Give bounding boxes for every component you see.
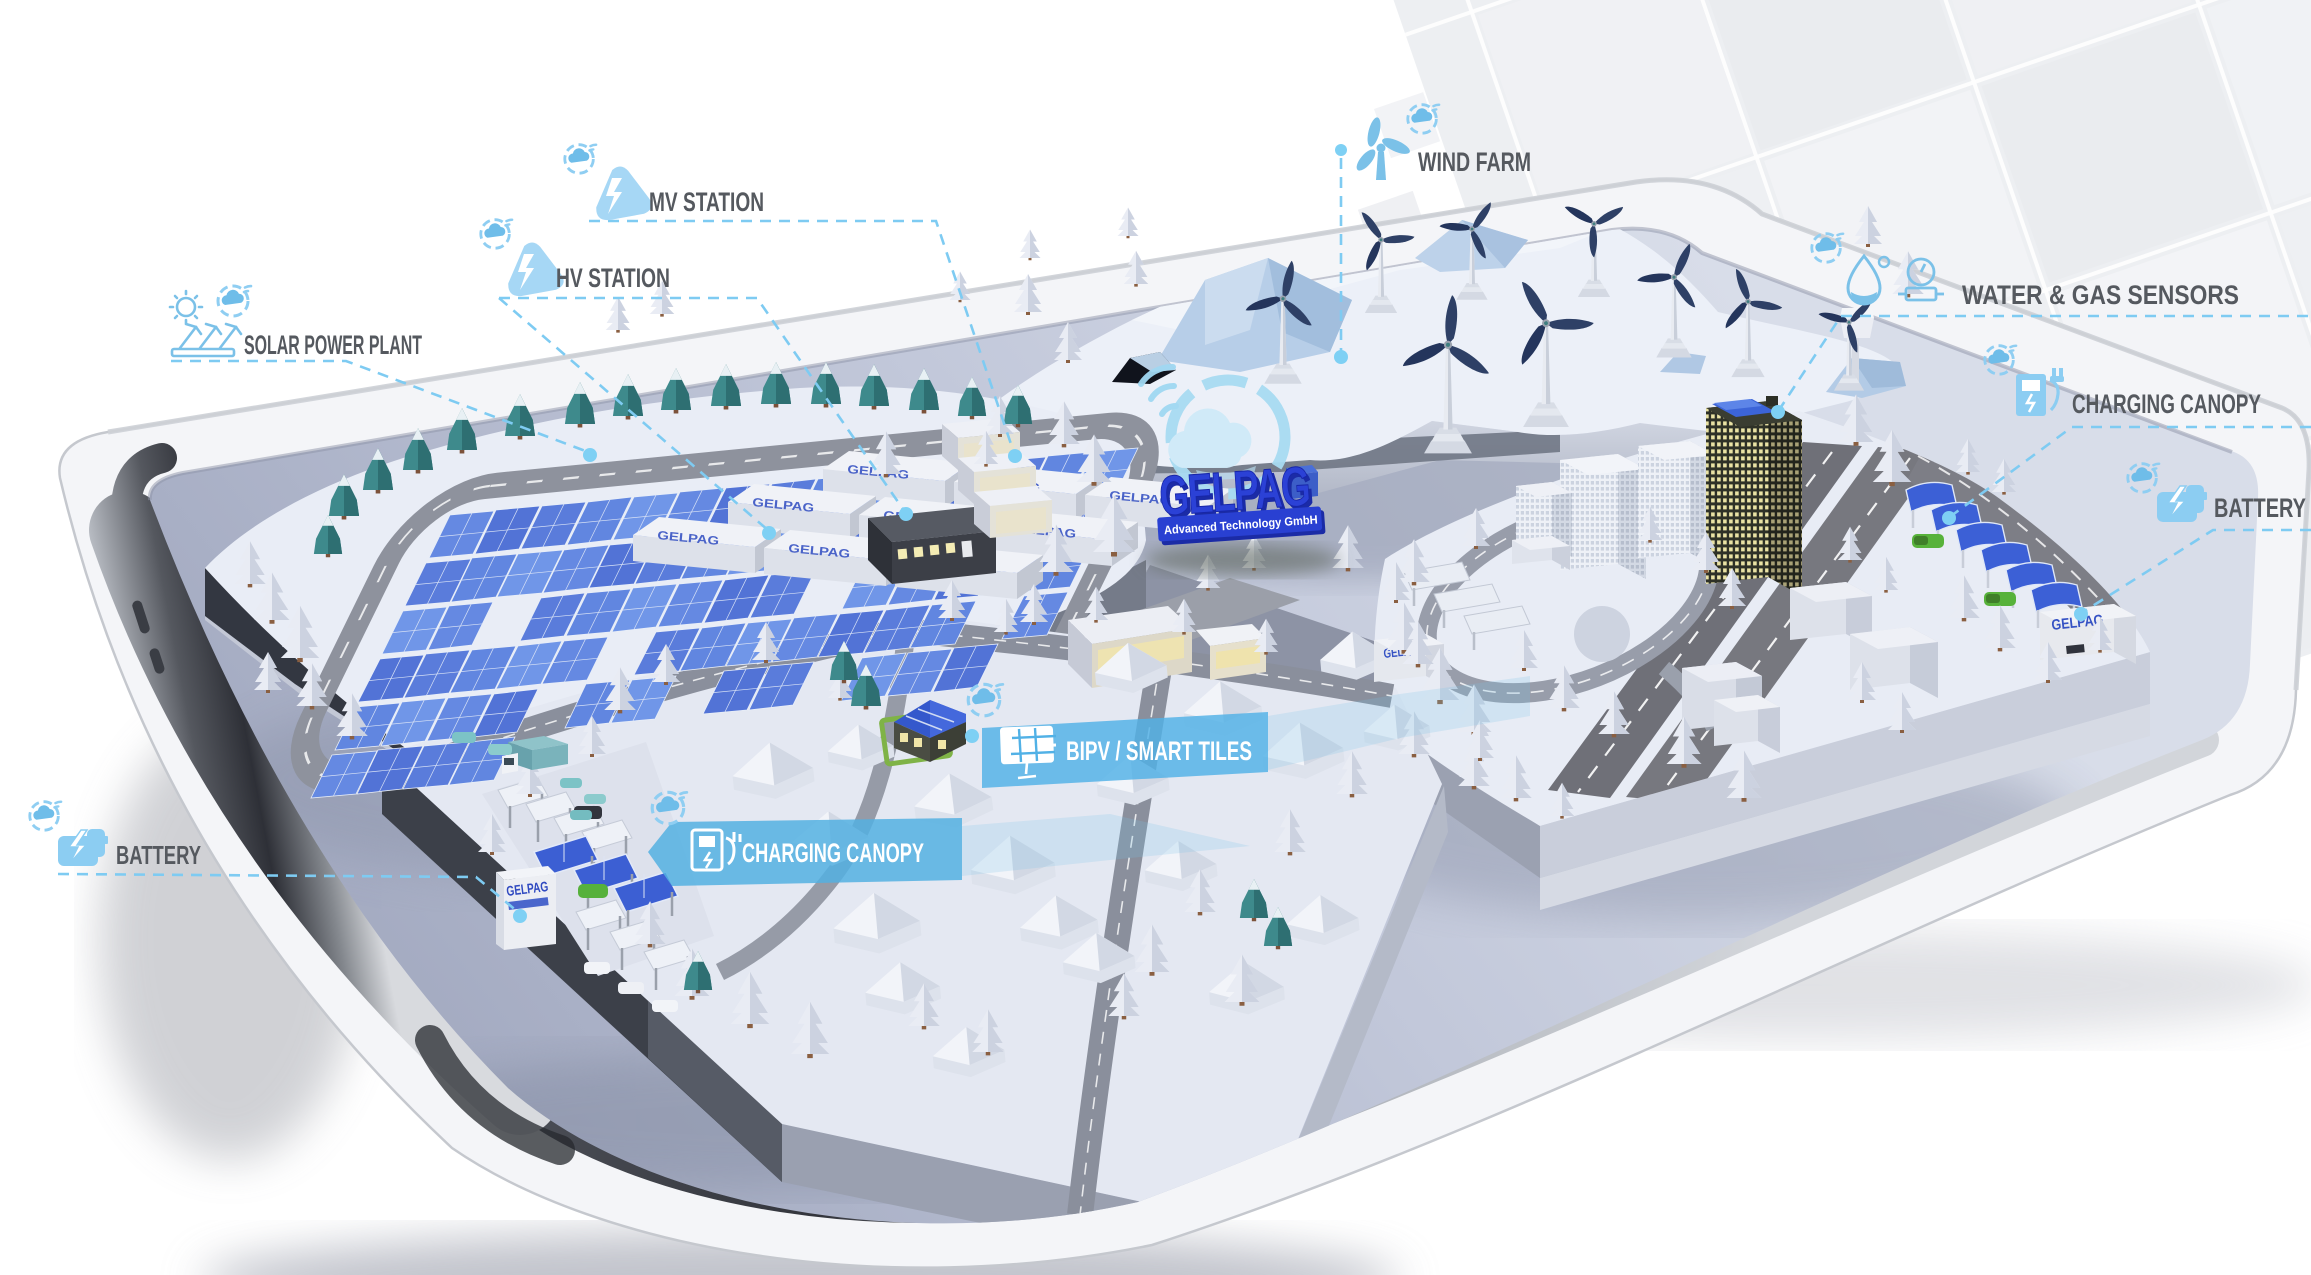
svg-text:BATTERY: BATTERY: [116, 840, 201, 870]
svg-text:WATER & GAS SENSORS: WATER & GAS SENSORS: [1962, 280, 2239, 310]
svg-text:BIPV / SMART TILES: BIPV / SMART TILES: [1066, 736, 1252, 766]
svg-text:BATTERY: BATTERY: [2214, 493, 2306, 523]
svg-text:CHARGING CANOPY: CHARGING CANOPY: [2072, 389, 2261, 419]
svg-text:WIND FARM: WIND FARM: [1418, 147, 1531, 177]
svg-text:HV STATION: HV STATION: [556, 263, 670, 293]
svg-text:SOLAR POWER PLANT: SOLAR POWER PLANT: [244, 330, 422, 360]
svg-text:CHARGING CANOPY: CHARGING CANOPY: [742, 838, 924, 868]
svg-text:MV STATION: MV STATION: [649, 187, 764, 217]
